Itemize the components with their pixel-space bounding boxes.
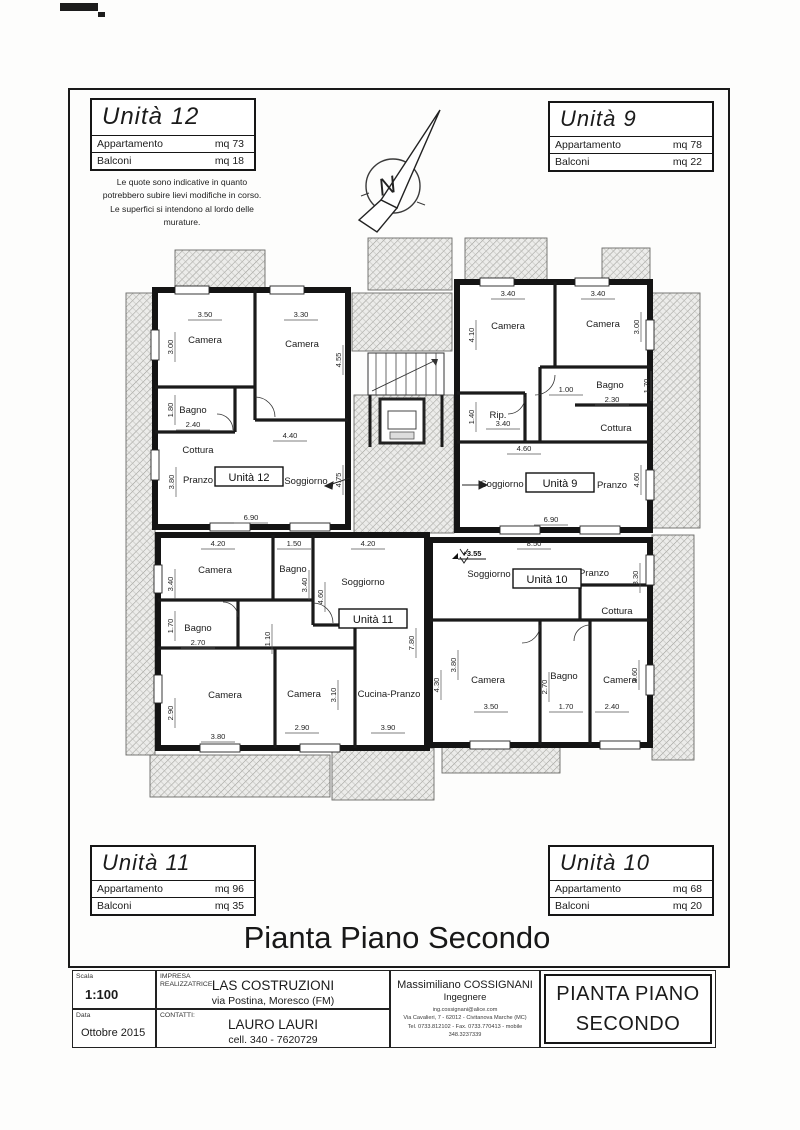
sheet-title: Pianta Piano Secondo bbox=[68, 920, 726, 956]
svg-text:1.70: 1.70 bbox=[166, 619, 175, 634]
unit-row-label: Balconi bbox=[555, 900, 589, 912]
svg-text:4.75: 4.75 bbox=[334, 473, 343, 488]
svg-text:3.50: 3.50 bbox=[484, 702, 499, 711]
engineer-email: ing.cossignani@alice.com bbox=[433, 1006, 498, 1014]
svg-text:4.20: 4.20 bbox=[361, 539, 376, 548]
unit-row-value: mq 20 bbox=[673, 900, 702, 912]
unit-tag: Unità 12 bbox=[215, 467, 283, 486]
drawing-sheet: Unità 12 Appartamento mq 73 Balconi mq 1… bbox=[0, 0, 800, 1130]
date-value: Ottobre 2015 bbox=[81, 1027, 155, 1039]
unit-row-value: mq 68 bbox=[673, 883, 702, 895]
room-label: Soggiorno bbox=[480, 479, 523, 490]
svg-text:1.40: 1.40 bbox=[467, 410, 476, 425]
svg-text:3.40: 3.40 bbox=[166, 577, 175, 592]
room-label: Camera bbox=[285, 339, 320, 350]
room-label: Camera bbox=[188, 335, 223, 346]
unit-row: Appartamento mq 96 bbox=[92, 881, 254, 897]
scan-artifact bbox=[98, 12, 105, 17]
room-label: Cottura bbox=[600, 423, 632, 434]
unit-row-label: Appartamento bbox=[555, 883, 621, 895]
unit-row-value: mq 18 bbox=[215, 155, 244, 167]
svg-text:6.90: 6.90 bbox=[244, 513, 259, 522]
date-label: Data bbox=[76, 1012, 90, 1020]
builder-label: IMPRESA REALIZZATRICE: bbox=[160, 973, 214, 990]
unit-row-label: Balconi bbox=[97, 900, 131, 912]
svg-text:2.30: 2.30 bbox=[605, 395, 620, 404]
engineer-phone: Tel. 0733.812102 - Fax. 0733.770413 - mo… bbox=[391, 1023, 539, 1040]
room-label: Camera bbox=[491, 321, 526, 332]
svg-text:4.60: 4.60 bbox=[632, 473, 641, 488]
room-label: Pranzo bbox=[183, 475, 213, 486]
contact-cell: CONTATTI: LAURO LAURI cell. 340 - 762072… bbox=[156, 1009, 390, 1048]
note-line: potrebbero subire lievi modifiche in cor… bbox=[84, 189, 280, 202]
room-label: Cottura bbox=[182, 445, 214, 456]
room-label: Pranzo bbox=[597, 480, 627, 491]
engineer-name: Massimiliano COSSIGNANI bbox=[397, 979, 533, 991]
svg-text:2.70: 2.70 bbox=[540, 680, 549, 695]
unit-box-11: Unità 11 Appartamento mq 96 Balconi mq 3… bbox=[90, 845, 256, 916]
svg-text:3.30: 3.30 bbox=[631, 571, 640, 586]
room-label: Camera bbox=[586, 319, 621, 330]
unit-row-value: mq 78 bbox=[673, 139, 702, 151]
svg-text:3.00: 3.00 bbox=[632, 320, 641, 335]
unit-row: Balconi mq 20 bbox=[550, 897, 712, 914]
engineer-title: Ingegnere bbox=[444, 992, 487, 1003]
svg-text:3.60: 3.60 bbox=[630, 668, 639, 683]
title-block: Scala 1:100 Data Ottobre 2015 IMPRESA RE… bbox=[72, 970, 716, 1048]
room-label: Soggiorno bbox=[467, 569, 510, 580]
unit-row: Balconi mq 22 bbox=[550, 153, 712, 170]
date-cell: Data Ottobre 2015 bbox=[72, 1009, 156, 1048]
room-label: Camera bbox=[287, 689, 322, 700]
svg-text:2.70: 2.70 bbox=[191, 638, 206, 647]
room-label: Camera bbox=[198, 565, 233, 576]
svg-text:1.00: 1.00 bbox=[559, 385, 574, 394]
room-label: Camera bbox=[208, 690, 243, 701]
note-line: Le superfici si intendono al lordo delle bbox=[84, 203, 280, 216]
svg-text:3.30: 3.30 bbox=[294, 310, 309, 319]
svg-text:3.10: 3.10 bbox=[329, 688, 338, 703]
svg-text:2.40: 2.40 bbox=[605, 702, 620, 711]
svg-text:+3.55: +3.55 bbox=[463, 549, 482, 558]
drawing-title-box: PIANTA PIANO SECONDO bbox=[544, 974, 712, 1044]
svg-text:1.70: 1.70 bbox=[642, 379, 651, 394]
drawing-title-line: PIANTA PIANO bbox=[556, 979, 699, 1009]
unit-row: Appartamento mq 73 bbox=[92, 136, 254, 152]
svg-text:1.80: 1.80 bbox=[166, 403, 175, 418]
unit-row: Balconi mq 18 bbox=[92, 152, 254, 169]
unit-box-9: Unità 9 Appartamento mq 78 Balconi mq 22 bbox=[548, 101, 714, 172]
svg-text:1.10: 1.10 bbox=[263, 632, 272, 647]
north-arrow-icon: N bbox=[345, 96, 460, 236]
svg-text:2.90: 2.90 bbox=[295, 723, 310, 732]
svg-text:3.80: 3.80 bbox=[211, 732, 226, 741]
engineer-cell: Massimiliano COSSIGNANI Ingegnere ing.co… bbox=[390, 970, 540, 1048]
unit-row-value: mq 22 bbox=[673, 156, 702, 168]
unit-row-label: Appartamento bbox=[555, 139, 621, 151]
note-line: murature. bbox=[84, 216, 280, 229]
drawing-title-line: SECONDO bbox=[576, 1009, 681, 1039]
builder-address: via Postina, Moresco (FM) bbox=[212, 995, 335, 1007]
unit-box-10: Unità 10 Appartamento mq 68 Balconi mq 2… bbox=[548, 845, 714, 916]
svg-text:1.50: 1.50 bbox=[287, 539, 302, 548]
room-label: Bagno bbox=[596, 380, 623, 391]
unit-row-label: Appartamento bbox=[97, 138, 163, 150]
plan-note: Le quote sono indicative in quanto potre… bbox=[84, 176, 280, 229]
svg-text:3.50: 3.50 bbox=[198, 310, 213, 319]
svg-text:Unità 9: Unità 9 bbox=[543, 478, 578, 490]
scale-value: 1:100 bbox=[85, 987, 155, 1002]
svg-text:4.10: 4.10 bbox=[467, 328, 476, 343]
scan-artifact bbox=[60, 3, 98, 11]
scale-cell: Scala 1:100 bbox=[72, 970, 156, 1009]
unit-row: Appartamento mq 78 bbox=[550, 137, 712, 153]
svg-text:8.50: 8.50 bbox=[527, 539, 542, 548]
svg-text:2.90: 2.90 bbox=[166, 706, 175, 721]
unit-row-label: Balconi bbox=[97, 155, 131, 167]
svg-text:3.80: 3.80 bbox=[449, 658, 458, 673]
drawing-title-cell: PIANTA PIANO SECONDO bbox=[540, 970, 716, 1048]
svg-text:3.40: 3.40 bbox=[591, 289, 606, 298]
svg-text:1.70: 1.70 bbox=[559, 702, 574, 711]
room-label: Bagno bbox=[179, 405, 206, 416]
svg-text:Unità 11: Unità 11 bbox=[353, 614, 393, 626]
svg-text:4.60: 4.60 bbox=[517, 444, 532, 453]
scale-label: Scala bbox=[76, 973, 93, 981]
unit-title: Unità 11 bbox=[92, 847, 254, 881]
builder-name: LAS COSTRUZIONI bbox=[212, 978, 334, 993]
builder-cell: IMPRESA REALIZZATRICE: LAS COSTRUZIONI v… bbox=[156, 970, 390, 1009]
svg-text:2.40: 2.40 bbox=[186, 420, 201, 429]
unit-row-value: mq 35 bbox=[215, 900, 244, 912]
room-label: Camera bbox=[471, 675, 506, 686]
room-label: Cucina-Pranzo bbox=[358, 689, 421, 700]
svg-text:3.80: 3.80 bbox=[167, 475, 176, 490]
unit-box-12: Unità 12 Appartamento mq 73 Balconi mq 1… bbox=[90, 98, 256, 171]
unit-tag: Unità 9 bbox=[526, 473, 594, 492]
room-label: Pranzo bbox=[579, 568, 609, 579]
contact-name: LAURO LAURI bbox=[228, 1017, 318, 1032]
unit-row-value: mq 73 bbox=[215, 138, 244, 150]
room-label: Bagno bbox=[550, 671, 577, 682]
unit-title: Unità 10 bbox=[550, 847, 712, 881]
contact-phone: cell. 340 - 7620729 bbox=[228, 1034, 317, 1046]
svg-text:4.20: 4.20 bbox=[211, 539, 226, 548]
unit-tag: Unità 11 bbox=[339, 609, 407, 628]
svg-text:3.40: 3.40 bbox=[501, 289, 516, 298]
room-label: Soggiorno bbox=[284, 476, 327, 487]
unit-row-label: Balconi bbox=[555, 156, 589, 168]
room-label: Bagno bbox=[184, 623, 211, 634]
room-label: Bagno bbox=[279, 564, 306, 575]
floorplan-svg: CameraCameraBagnoCotturaPranzoSoggiornoC… bbox=[120, 235, 710, 840]
svg-text:Unità 10: Unità 10 bbox=[527, 574, 568, 586]
svg-text:6.90: 6.90 bbox=[544, 515, 559, 524]
svg-text:7.80: 7.80 bbox=[407, 636, 416, 651]
svg-text:3.00: 3.00 bbox=[166, 340, 175, 355]
unit-row-value: mq 96 bbox=[215, 883, 244, 895]
unit-title: Unità 12 bbox=[92, 100, 254, 136]
note-line: Le quote sono indicative in quanto bbox=[84, 176, 280, 189]
svg-text:4.30: 4.30 bbox=[432, 678, 441, 693]
svg-text:3.40: 3.40 bbox=[496, 419, 511, 428]
svg-text:3.40: 3.40 bbox=[300, 578, 309, 593]
room-label: Cottura bbox=[601, 606, 633, 617]
room-label: Soggiorno bbox=[341, 577, 384, 588]
svg-text:Unità 12: Unità 12 bbox=[229, 472, 270, 484]
contact-label: CONTATTI: bbox=[160, 1012, 195, 1020]
unit-row-label: Appartamento bbox=[97, 883, 163, 895]
unit-tag: Unità 10 bbox=[513, 569, 581, 588]
engineer-address: Via Cavalieri, 7 - 62012 - Civitanova Ma… bbox=[403, 1014, 526, 1022]
unit-row: Appartamento mq 68 bbox=[550, 881, 712, 897]
unit-title: Unità 9 bbox=[550, 103, 712, 137]
svg-text:4.60: 4.60 bbox=[316, 590, 325, 605]
svg-text:3.90: 3.90 bbox=[381, 723, 396, 732]
unit-row: Balconi mq 35 bbox=[92, 897, 254, 914]
svg-text:4.55: 4.55 bbox=[334, 353, 343, 368]
svg-text:4.40: 4.40 bbox=[283, 431, 298, 440]
